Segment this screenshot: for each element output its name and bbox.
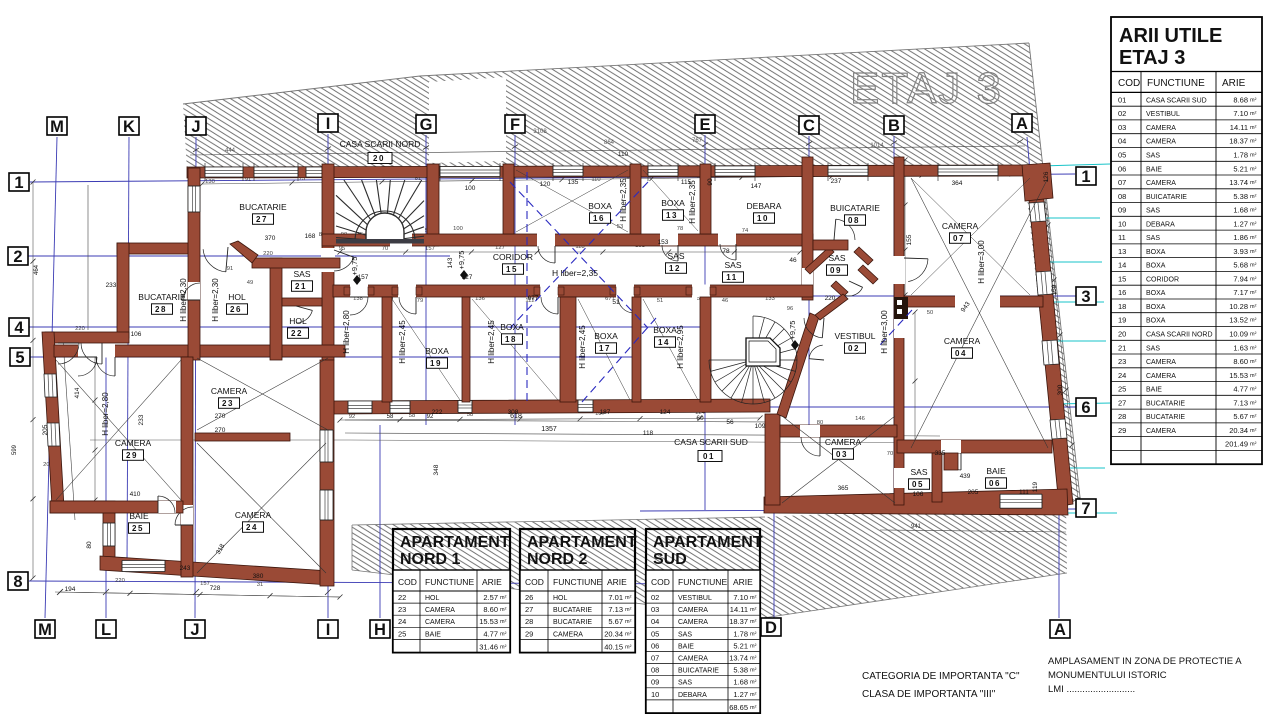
- svg-text:24: 24: [398, 617, 406, 626]
- svg-text:CAMERA: CAMERA: [678, 656, 708, 663]
- svg-text:CAMERA: CAMERA: [1146, 359, 1176, 366]
- svg-text:96: 96: [787, 306, 793, 312]
- svg-text:146: 146: [855, 416, 865, 422]
- svg-text:CAMERA: CAMERA: [235, 510, 272, 520]
- svg-text:E: E: [699, 116, 710, 134]
- svg-text:SAS: SAS: [667, 251, 684, 261]
- svg-text:60: 60: [696, 415, 704, 422]
- svg-text:1357: 1357: [541, 426, 557, 433]
- svg-text:233: 233: [106, 282, 117, 289]
- svg-text:5.38: 5.38: [1233, 192, 1248, 201]
- svg-text:51: 51: [657, 298, 663, 304]
- svg-text:21: 21: [295, 282, 307, 291]
- svg-text:126: 126: [1043, 171, 1050, 182]
- svg-text:CAMERA: CAMERA: [1146, 180, 1176, 187]
- svg-text:08: 08: [848, 216, 860, 225]
- svg-text:H liber=2,80: H liber=2,80: [342, 310, 351, 354]
- svg-text:DEBARA: DEBARA: [678, 692, 707, 699]
- svg-text:13.74: 13.74: [1229, 178, 1248, 187]
- svg-text:70: 70: [887, 451, 893, 457]
- svg-text:5.21: 5.21: [733, 641, 748, 650]
- svg-text:04: 04: [651, 617, 659, 626]
- svg-text:10.28: 10.28: [1229, 302, 1248, 311]
- svg-text:1.68: 1.68: [733, 678, 748, 687]
- svg-text:7.10: 7.10: [1233, 109, 1248, 118]
- svg-text:CAMERA: CAMERA: [553, 631, 583, 638]
- svg-text:m²: m²: [1250, 153, 1257, 159]
- svg-text:5: 5: [15, 349, 24, 367]
- svg-text:SUD: SUD: [653, 551, 687, 568]
- svg-text:m²: m²: [750, 619, 757, 625]
- svg-text:BAIE: BAIE: [986, 466, 1006, 476]
- svg-text:3: 3: [1081, 288, 1090, 306]
- svg-text:HOL: HOL: [289, 316, 307, 326]
- svg-text:09: 09: [830, 266, 842, 275]
- svg-text:16: 16: [1118, 288, 1126, 297]
- svg-text:SAS: SAS: [1146, 153, 1160, 160]
- svg-text:m²: m²: [1250, 414, 1257, 420]
- svg-text:100: 100: [465, 185, 476, 192]
- svg-text:m²: m²: [500, 644, 507, 650]
- svg-text:414: 414: [74, 387, 81, 398]
- svg-text:CASA SCARII SUD: CASA SCARII SUD: [674, 437, 748, 447]
- svg-text:CAMERA: CAMERA: [425, 607, 455, 614]
- svg-text:ARIE: ARIE: [733, 577, 753, 587]
- svg-text:M: M: [50, 118, 64, 136]
- svg-text:FUNCTIUNE: FUNCTIUNE: [553, 577, 602, 587]
- svg-text:ARII UTILE: ARII UTILE: [1119, 25, 1222, 47]
- svg-text:130: 130: [205, 179, 215, 185]
- svg-text:m²: m²: [750, 692, 757, 698]
- svg-text:335: 335: [935, 450, 946, 457]
- svg-text:APARTAMENT: APARTAMENT: [400, 534, 510, 551]
- svg-text:220: 220: [825, 295, 836, 302]
- svg-text:K: K: [123, 118, 135, 136]
- svg-text:m²: m²: [1250, 345, 1257, 351]
- svg-text:07: 07: [651, 654, 659, 663]
- svg-text:CAMERA: CAMERA: [1146, 373, 1176, 380]
- svg-text:BOXA: BOXA: [588, 201, 612, 211]
- svg-text:4.77: 4.77: [483, 629, 498, 638]
- svg-text:H liber=2,80: H liber=2,80: [101, 392, 110, 436]
- svg-text:BAIE: BAIE: [425, 631, 441, 638]
- svg-text:07: 07: [1118, 178, 1126, 187]
- svg-text:F: F: [510, 116, 520, 134]
- svg-text:CAMERA: CAMERA: [1146, 125, 1176, 132]
- svg-text:28: 28: [1118, 412, 1126, 421]
- svg-text:11: 11: [726, 273, 737, 282]
- svg-text:LMI .........................: LMI ..........................: [1048, 684, 1135, 695]
- svg-text:BAIE: BAIE: [1146, 166, 1162, 173]
- svg-text:13.52: 13.52: [1229, 316, 1248, 325]
- svg-text:5.67: 5.67: [608, 617, 623, 626]
- svg-text:439: 439: [960, 473, 971, 480]
- svg-text:m²: m²: [750, 607, 757, 613]
- svg-text:SAS: SAS: [828, 253, 845, 263]
- svg-text:25: 25: [398, 629, 406, 638]
- svg-text:BUICATARIE: BUICATARIE: [1146, 194, 1187, 201]
- svg-text:56: 56: [726, 419, 734, 426]
- svg-text:29: 29: [1118, 426, 1126, 435]
- svg-text:H liber=2,35: H liber=2,35: [619, 178, 628, 222]
- svg-text:300: 300: [1057, 384, 1064, 395]
- svg-text:74: 74: [742, 228, 749, 234]
- svg-text:m²: m²: [1250, 180, 1257, 186]
- svg-text:SAS: SAS: [1146, 208, 1160, 215]
- svg-text:m²: m²: [750, 705, 757, 711]
- svg-text:CASA SCARII NORD: CASA SCARII NORD: [1146, 332, 1213, 339]
- svg-text:07: 07: [953, 234, 965, 243]
- svg-text:1: 1: [14, 174, 23, 192]
- svg-text:m²: m²: [1250, 139, 1257, 145]
- svg-text:m²: m²: [625, 619, 632, 625]
- svg-text:14: 14: [658, 338, 670, 347]
- svg-text:270: 270: [215, 427, 226, 434]
- svg-text:CASA SCARII SUD: CASA SCARII SUD: [1146, 97, 1207, 104]
- svg-text:27: 27: [1118, 398, 1126, 407]
- svg-text:FUNCTIUNE: FUNCTIUNE: [1147, 78, 1205, 89]
- svg-text:168: 168: [305, 233, 316, 240]
- svg-text:6: 6: [1081, 399, 1090, 417]
- svg-text:25: 25: [132, 524, 144, 533]
- svg-text:308: 308: [508, 409, 519, 416]
- svg-text:H liber=3,00: H liber=3,00: [880, 310, 889, 354]
- svg-text:m²: m²: [1250, 290, 1257, 296]
- svg-text:CLASA DE IMPORTANTA "III: CLASA DE IMPORTANTA "III": [862, 689, 996, 700]
- svg-text:365: 365: [838, 485, 849, 492]
- svg-text:H: H: [374, 621, 386, 639]
- svg-text:17: 17: [599, 344, 611, 353]
- svg-text:220: 220: [75, 326, 85, 332]
- svg-text:599: 599: [12, 444, 18, 455]
- svg-text:135: 135: [568, 179, 579, 186]
- svg-text:m²: m²: [500, 607, 507, 613]
- svg-text:M: M: [38, 621, 52, 639]
- svg-text:m²: m²: [750, 668, 757, 674]
- svg-text:m²: m²: [1250, 359, 1257, 365]
- svg-text:m²: m²: [750, 656, 757, 662]
- svg-text:m²: m²: [1250, 318, 1257, 324]
- svg-text:8.68: 8.68: [1233, 95, 1248, 104]
- svg-text:I: I: [326, 621, 331, 639]
- svg-text:27: 27: [525, 605, 533, 614]
- svg-text:22: 22: [398, 593, 406, 602]
- svg-text:187: 187: [600, 409, 611, 416]
- svg-text:BOXA: BOXA: [1146, 249, 1166, 256]
- svg-text:68.65: 68.65: [729, 703, 748, 712]
- svg-text:m²: m²: [1250, 387, 1257, 393]
- svg-text:BOXA: BOXA: [594, 331, 618, 341]
- svg-text:CATEGORIA DE IMPORTANTA ": CATEGORIA DE IMPORTANTA "C": [862, 671, 1020, 682]
- svg-text:92: 92: [349, 414, 355, 420]
- svg-text:28: 28: [525, 617, 533, 626]
- svg-text:06: 06: [1118, 164, 1126, 173]
- svg-text:COD: COD: [651, 577, 670, 587]
- svg-text:m²: m²: [1250, 166, 1257, 172]
- svg-text:106: 106: [913, 491, 924, 498]
- svg-text:13: 13: [1118, 247, 1126, 256]
- svg-text:70: 70: [382, 246, 388, 252]
- svg-text:BOXA: BOXA: [425, 346, 449, 356]
- svg-text:7: 7: [1081, 500, 1090, 518]
- svg-text:18.37: 18.37: [729, 617, 748, 626]
- svg-text:03: 03: [836, 450, 848, 459]
- svg-text:95: 95: [339, 246, 345, 252]
- svg-text:05: 05: [1118, 151, 1126, 160]
- svg-text:m²: m²: [1250, 208, 1257, 214]
- svg-text:23: 23: [398, 605, 406, 614]
- svg-text:VESTIBUL: VESTIBUL: [678, 595, 712, 602]
- svg-text:BUCATARIE: BUCATARIE: [239, 202, 287, 212]
- svg-text:BOXA: BOXA: [1146, 290, 1166, 297]
- svg-text:BUCATARIE: BUCATARIE: [553, 619, 592, 626]
- svg-text:7.94: 7.94: [1233, 274, 1248, 283]
- svg-text:18: 18: [1118, 302, 1126, 311]
- svg-text:220: 220: [263, 251, 273, 257]
- svg-text:5.68: 5.68: [1233, 261, 1248, 270]
- svg-text:1.27: 1.27: [733, 690, 748, 699]
- svg-text:ARIE: ARIE: [607, 577, 627, 587]
- svg-text:DEBARA: DEBARA: [747, 201, 782, 211]
- svg-text:m²: m²: [750, 631, 757, 637]
- svg-text:SAS: SAS: [293, 269, 310, 279]
- svg-text:SAS: SAS: [678, 631, 692, 638]
- svg-text:m²: m²: [1250, 276, 1257, 282]
- svg-text:C: C: [803, 117, 815, 135]
- svg-text:1.78: 1.78: [733, 629, 748, 638]
- svg-text:100: 100: [453, 226, 463, 232]
- svg-text:DEBARA: DEBARA: [1146, 221, 1175, 228]
- svg-text:8.60: 8.60: [483, 605, 498, 614]
- svg-text:H liber=3,00: H liber=3,00: [977, 240, 986, 284]
- svg-text:27: 27: [256, 215, 268, 224]
- svg-text:B: B: [888, 117, 900, 135]
- svg-text:BOXA: BOXA: [500, 322, 524, 332]
- svg-text:m²: m²: [1250, 304, 1257, 310]
- svg-text:BAIE: BAIE: [129, 511, 149, 521]
- svg-text:SAS: SAS: [910, 467, 927, 477]
- svg-text:7.17: 7.17: [1233, 288, 1248, 297]
- svg-text:APARTAMENT: APARTAMENT: [653, 534, 763, 551]
- svg-text:143: 143: [447, 257, 454, 268]
- svg-text:CAMERA: CAMERA: [678, 607, 708, 614]
- svg-text:4: 4: [14, 319, 24, 337]
- svg-text:205: 205: [42, 424, 49, 435]
- svg-text:115: 115: [681, 179, 692, 186]
- svg-text:08: 08: [651, 666, 659, 675]
- svg-text:CAMERA: CAMERA: [425, 619, 455, 626]
- svg-text:06: 06: [989, 479, 1001, 488]
- svg-text:m²: m²: [1250, 97, 1257, 103]
- svg-text:m²: m²: [500, 619, 507, 625]
- svg-text:H liber=2,30: H liber=2,30: [179, 278, 188, 322]
- svg-text:m²: m²: [1250, 221, 1257, 227]
- svg-text:m²: m²: [1250, 373, 1257, 379]
- svg-text:233: 233: [138, 414, 145, 425]
- svg-text:106: 106: [131, 331, 142, 338]
- svg-text:205: 205: [968, 489, 979, 496]
- svg-text:HOL: HOL: [425, 595, 440, 602]
- svg-text:3108: 3108: [533, 129, 547, 135]
- svg-text:L: L: [101, 621, 111, 639]
- svg-text:COD: COD: [1118, 78, 1140, 89]
- svg-text:BUICATARIE: BUICATARIE: [830, 203, 880, 213]
- svg-text:CAMERA: CAMERA: [115, 438, 152, 448]
- svg-text:m²: m²: [625, 644, 632, 650]
- svg-text:01: 01: [1118, 95, 1126, 104]
- svg-text:5.38: 5.38: [733, 666, 748, 675]
- svg-text:BUICATARIE: BUICATARIE: [678, 668, 719, 675]
- svg-text:1014: 1014: [870, 143, 884, 149]
- svg-text:05: 05: [651, 629, 659, 638]
- svg-text:109: 109: [755, 423, 766, 430]
- svg-text:CAMERA: CAMERA: [1146, 428, 1176, 435]
- svg-text:CAMERA: CAMERA: [944, 336, 981, 346]
- svg-text:A: A: [1054, 621, 1066, 639]
- svg-text:VESTIBUL: VESTIBUL: [1146, 111, 1180, 118]
- svg-text:I: I: [326, 115, 331, 133]
- svg-text:m²: m²: [1250, 442, 1257, 448]
- svg-text:20.34: 20.34: [1229, 426, 1248, 435]
- svg-text:58: 58: [387, 414, 394, 420]
- svg-text:FUNCTIUNE: FUNCTIUNE: [678, 577, 727, 587]
- svg-text:1.78: 1.78: [1233, 151, 1248, 160]
- svg-text:7.10: 7.10: [733, 593, 748, 602]
- svg-text:8.60: 8.60: [1233, 357, 1248, 366]
- svg-text:m²: m²: [1250, 249, 1257, 255]
- svg-text:25: 25: [1118, 385, 1126, 394]
- svg-text:m²: m²: [1250, 332, 1257, 338]
- svg-text:201.49: 201.49: [1225, 440, 1248, 449]
- svg-text:CAMERA: CAMERA: [942, 221, 979, 231]
- svg-text:118: 118: [643, 430, 654, 437]
- svg-text:380: 380: [253, 573, 264, 580]
- svg-text:16: 16: [593, 214, 605, 223]
- svg-text:124: 124: [660, 409, 671, 416]
- svg-text:H liber=2,95: H liber=2,95: [676, 325, 685, 369]
- svg-text:13.74: 13.74: [729, 654, 748, 663]
- svg-text:155: 155: [906, 234, 913, 245]
- svg-text:m²: m²: [750, 595, 757, 601]
- svg-text:10: 10: [757, 214, 769, 223]
- svg-text:ARIE: ARIE: [482, 577, 502, 587]
- svg-text:13: 13: [666, 211, 678, 220]
- svg-text:10.09: 10.09: [1229, 330, 1248, 339]
- svg-text:26: 26: [230, 305, 242, 314]
- svg-text:4.77: 4.77: [1233, 385, 1248, 394]
- svg-text:110: 110: [591, 177, 600, 183]
- svg-text:VESTIBUL: VESTIBUL: [834, 331, 875, 341]
- svg-text:3.93: 3.93: [1233, 247, 1248, 256]
- svg-text:BOXA: BOXA: [653, 325, 677, 335]
- svg-text:20: 20: [373, 154, 385, 163]
- svg-text:941: 941: [911, 524, 922, 530]
- svg-text:7.13: 7.13: [608, 605, 623, 614]
- svg-text:BOXA: BOXA: [1146, 263, 1166, 270]
- svg-text:147: 147: [751, 183, 762, 190]
- svg-text:1: 1: [1081, 168, 1090, 186]
- svg-text:153: 153: [658, 239, 669, 246]
- svg-text:15.53: 15.53: [1229, 371, 1248, 380]
- svg-text:m²: m²: [500, 595, 507, 601]
- svg-text:m²: m²: [625, 631, 632, 637]
- svg-text:+9,75: +9,75: [457, 251, 466, 270]
- svg-text:m²: m²: [1250, 263, 1257, 269]
- svg-text:COD: COD: [398, 577, 417, 587]
- svg-text:31: 31: [257, 582, 263, 588]
- svg-text:BUCATARIE: BUCATARIE: [553, 607, 592, 614]
- svg-text:220: 220: [115, 578, 125, 584]
- svg-text:5.21: 5.21: [1233, 164, 1248, 173]
- svg-text:+9,75: +9,75: [788, 321, 797, 340]
- svg-text:24: 24: [246, 523, 258, 532]
- svg-text:79: 79: [417, 298, 423, 304]
- svg-text:m²: m²: [750, 680, 757, 686]
- svg-text:09: 09: [1118, 206, 1126, 215]
- svg-text:m²: m²: [1250, 235, 1257, 241]
- svg-text:m²: m²: [1250, 400, 1257, 406]
- svg-text:7.01: 7.01: [608, 593, 623, 602]
- svg-text:243: 243: [180, 565, 191, 572]
- svg-text:49: 49: [247, 280, 253, 286]
- svg-text:80: 80: [86, 541, 93, 549]
- svg-text:H liber=2,35: H liber=2,35: [552, 268, 598, 278]
- svg-text:02: 02: [1118, 109, 1126, 118]
- svg-text:12: 12: [669, 264, 681, 273]
- svg-text:m²: m²: [625, 607, 632, 613]
- svg-text:H liber=2,45: H liber=2,45: [578, 325, 587, 369]
- svg-text:18.37: 18.37: [1229, 137, 1248, 146]
- svg-text:46: 46: [789, 257, 797, 264]
- svg-text:91: 91: [227, 266, 233, 272]
- svg-text:127: 127: [462, 274, 473, 281]
- svg-text:348: 348: [433, 464, 440, 475]
- svg-text:COD: COD: [525, 577, 544, 587]
- svg-text:20: 20: [1118, 330, 1126, 339]
- svg-text:14: 14: [1118, 261, 1126, 270]
- svg-text:50: 50: [927, 310, 933, 316]
- svg-text:364: 364: [952, 180, 963, 187]
- svg-text:02: 02: [651, 593, 659, 602]
- svg-text:2.57: 2.57: [483, 593, 498, 602]
- svg-text:ETAJ 3: ETAJ 3: [850, 64, 1003, 113]
- svg-text:29: 29: [525, 629, 533, 638]
- svg-text:H liber=2,45: H liber=2,45: [398, 320, 407, 364]
- svg-text:BAIE: BAIE: [678, 643, 694, 650]
- svg-text:767: 767: [692, 138, 703, 144]
- svg-text:119: 119: [1032, 481, 1039, 492]
- svg-text:05: 05: [912, 480, 924, 489]
- svg-text:H liber=2,30: H liber=2,30: [211, 278, 220, 322]
- svg-text:10: 10: [651, 690, 659, 699]
- svg-text:04: 04: [955, 349, 967, 358]
- svg-text:110: 110: [618, 151, 629, 158]
- svg-text:CAMERA: CAMERA: [825, 437, 862, 447]
- svg-text:157: 157: [358, 274, 369, 281]
- svg-text:15: 15: [506, 265, 518, 274]
- svg-text:51: 51: [612, 299, 620, 306]
- svg-text:14.11: 14.11: [1230, 123, 1248, 132]
- svg-text:19: 19: [1118, 316, 1126, 325]
- svg-text:222: 222: [432, 409, 443, 416]
- svg-text:237: 237: [831, 178, 842, 185]
- svg-text:08: 08: [1118, 192, 1126, 201]
- svg-text:15: 15: [1118, 274, 1126, 283]
- svg-text:04: 04: [1118, 137, 1126, 146]
- svg-text:1.27: 1.27: [1233, 219, 1248, 228]
- svg-text:7.13: 7.13: [1233, 398, 1248, 407]
- svg-text:03: 03: [1118, 123, 1126, 132]
